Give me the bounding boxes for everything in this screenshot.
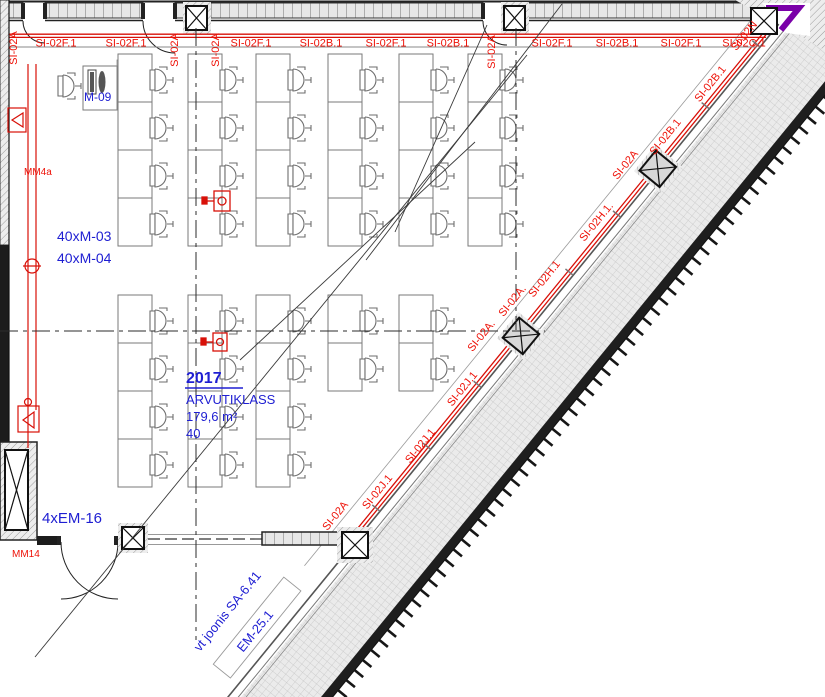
room-area: 179,6 m² (186, 409, 238, 424)
chair-icon (220, 67, 243, 93)
chair-icon (500, 211, 523, 237)
left-wall (0, 0, 9, 445)
wall-segment-label: SI-02F.1 (36, 38, 77, 50)
ventilation-shaft (0, 442, 37, 540)
chair-icon (431, 163, 454, 189)
desk (399, 343, 433, 391)
wall-segment-label: SI-02A (169, 33, 181, 67)
wall-segment-label: SI-02F.1 (532, 38, 573, 50)
bottom-wall (37, 523, 373, 599)
wall-segment-label: SI-02A. (496, 283, 528, 319)
desk (468, 102, 502, 150)
desk (468, 150, 502, 198)
junction-symbol (23, 259, 41, 273)
em16-label: 4xEM-16 (42, 510, 102, 527)
desk (256, 439, 290, 487)
chair-icon (150, 211, 173, 237)
chair-icon (150, 452, 173, 478)
chair-icon (288, 211, 311, 237)
chair-icon (288, 115, 311, 141)
chair-icon (360, 356, 383, 382)
tables-count-label: 40xM-03 (57, 228, 112, 244)
chair-icon (288, 67, 311, 93)
chair-icon (431, 67, 454, 93)
desk (328, 343, 362, 391)
chair-icon (431, 211, 454, 237)
floor-plan-drawing: M-09 40xM-03 40xM-04 MM4a MM14 4xEM-16 2… (0, 0, 825, 697)
wall-segment-label: SI-02J.1 (445, 369, 480, 408)
chair-icon (58, 73, 81, 99)
desk (118, 343, 152, 391)
desk (328, 54, 362, 102)
room-number: 2017 (186, 370, 222, 387)
desk (256, 198, 290, 246)
desk (256, 150, 290, 198)
structural-column (118, 523, 148, 553)
chair-icon (220, 115, 243, 141)
chair-icon (220, 163, 243, 189)
left-cable-trunk (8, 64, 41, 448)
wall-segment-label: SI-02A (8, 31, 20, 65)
desk (118, 150, 152, 198)
desk (468, 198, 502, 246)
wall-segment-label: SI-02F.1 (106, 38, 147, 50)
mm4a-label: MM4a (24, 167, 52, 178)
chair-icon (150, 163, 173, 189)
desk (118, 391, 152, 439)
wall-segment-label: SI-02A (486, 35, 498, 69)
desk-grid (118, 54, 523, 487)
chair-icon (220, 211, 243, 237)
chair-icon (500, 115, 523, 141)
chair-icon (360, 308, 383, 334)
chair-icon (288, 452, 311, 478)
desk (118, 198, 152, 246)
chair-icon (360, 67, 383, 93)
desk (256, 54, 290, 102)
chair-icon (150, 308, 173, 334)
chair-icon (360, 115, 383, 141)
chair-icon (288, 163, 311, 189)
wall-segment-label: SI-02F.1 (231, 38, 272, 50)
desk (399, 54, 433, 102)
room-name: ARVUTIKLASS (186, 392, 276, 407)
desk (118, 439, 152, 487)
chair-icon (288, 404, 311, 430)
chair-icon (431, 356, 454, 382)
chair-icon (360, 163, 383, 189)
chair-icon (220, 452, 243, 478)
mm14-label: MM14 (12, 549, 40, 560)
desk (328, 198, 362, 246)
wall-segment-label: SI-02J.1 (360, 472, 395, 511)
desk (118, 54, 152, 102)
chair-icon (150, 404, 173, 430)
teacher-station-label: M-09 (84, 90, 112, 104)
chair-icon (220, 308, 243, 334)
desk (328, 150, 362, 198)
structural-column (501, 2, 529, 34)
wall-segment-label: SI-02H.1. (577, 200, 616, 244)
chair-icon (288, 356, 311, 382)
room-capacity: 40 (186, 426, 200, 441)
chair-icon (150, 115, 173, 141)
wall-segment-label: SI-02A (610, 148, 641, 182)
desk (256, 343, 290, 391)
desk (188, 102, 222, 150)
chair-icon (150, 67, 173, 93)
desk (188, 198, 222, 246)
desk (118, 295, 152, 343)
desk (256, 102, 290, 150)
desk (256, 295, 290, 343)
desk (118, 102, 152, 150)
chair-icon (360, 211, 383, 237)
desk (328, 102, 362, 150)
floor-plan-canvas: M-09 40xM-03 40xM-04 MM4a MM14 4xEM-16 2… (0, 0, 825, 697)
chair-icon (150, 356, 173, 382)
wall-segment-label: SI-02B.1 (596, 38, 639, 50)
desk (188, 295, 222, 343)
chair-icon (500, 163, 523, 189)
wall-segment-label: SI-02A (210, 33, 222, 67)
desk (399, 295, 433, 343)
wall-segment-label: SI-02F.1 (661, 38, 702, 50)
wall-segment-label: SI-02F.1 (366, 38, 407, 50)
desk (328, 295, 362, 343)
chairs-count-label: 40xM-04 (57, 250, 112, 266)
speaker-icon (8, 108, 26, 132)
chair-icon (431, 115, 454, 141)
wall-segment-label: SI-02B.1 (427, 38, 470, 50)
chair-icon (431, 308, 454, 334)
structural-column (183, 2, 211, 34)
wall-segment-label: SI-02B.1 (300, 38, 343, 50)
desk (399, 102, 433, 150)
chair-icon (220, 356, 243, 382)
structural-column (337, 527, 373, 563)
